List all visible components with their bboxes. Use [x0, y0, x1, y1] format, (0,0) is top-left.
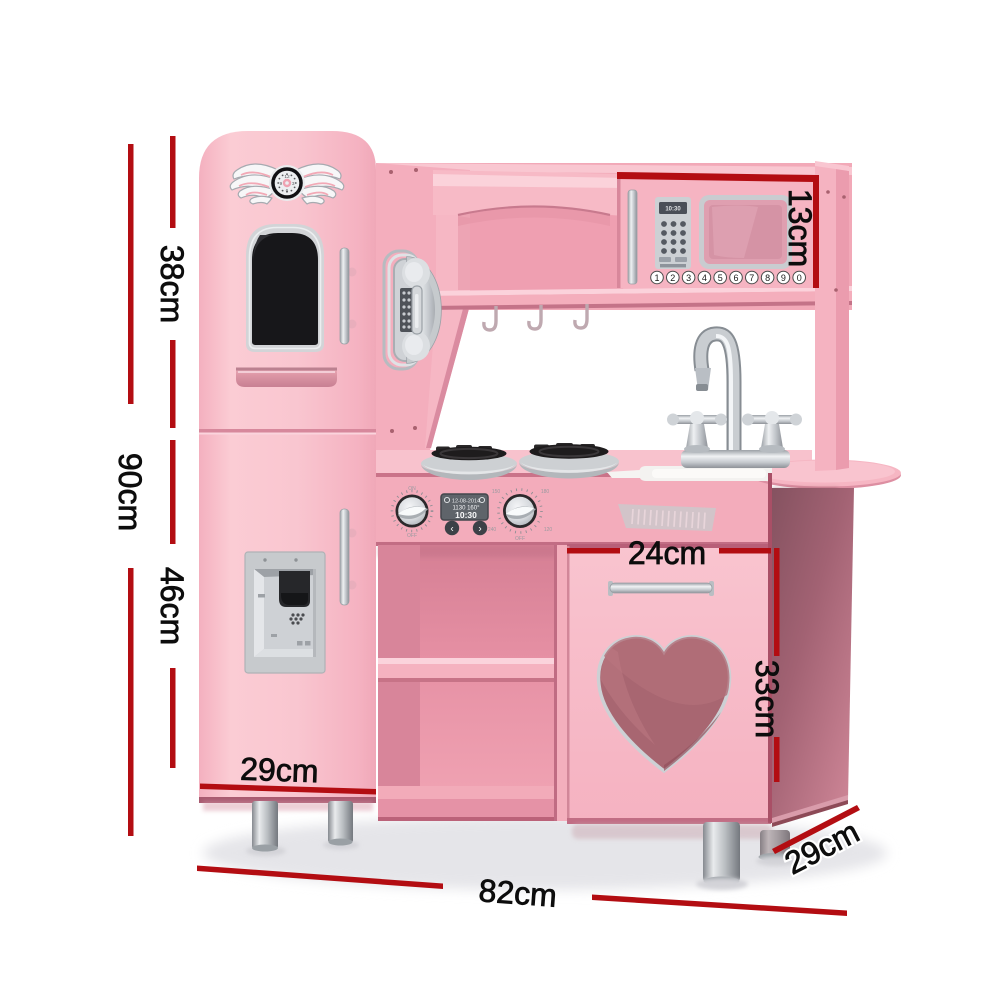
svg-text:3: 3: [686, 273, 691, 283]
svg-text:OFF: OFF: [515, 536, 525, 542]
svg-text:120: 120: [544, 527, 553, 533]
svg-text:6: 6: [733, 273, 738, 283]
svg-text:10:30: 10:30: [665, 207, 681, 213]
svg-text:13cm: 13cm: [782, 189, 818, 267]
svg-text:24cm: 24cm: [628, 535, 706, 571]
svg-text:0: 0: [797, 273, 802, 283]
svg-text:46cm: 46cm: [154, 567, 190, 645]
svg-text:2: 2: [670, 273, 675, 283]
svg-text:‹: ‹: [450, 524, 453, 535]
svg-text:8: 8: [765, 273, 770, 283]
svg-text:9: 9: [279, 181, 282, 187]
svg-text:6: 6: [286, 188, 289, 194]
svg-text:1: 1: [654, 273, 659, 283]
svg-text:ON: ON: [408, 486, 416, 492]
svg-text:90cm: 90cm: [112, 453, 148, 531]
svg-text:33cm: 33cm: [749, 660, 785, 738]
svg-text:38cm: 38cm: [154, 245, 190, 323]
svg-text:5: 5: [718, 273, 723, 283]
svg-text:OFF: OFF: [407, 533, 417, 539]
svg-text:240: 240: [488, 527, 497, 533]
svg-text:›: ›: [478, 524, 481, 535]
svg-text:10:30: 10:30: [455, 510, 477, 520]
svg-text:180: 180: [541, 489, 550, 495]
svg-text:150: 150: [492, 489, 501, 495]
svg-text:12-08-2014: 12-08-2014: [452, 499, 480, 505]
svg-text:29cm: 29cm: [240, 751, 319, 790]
svg-text:9: 9: [781, 273, 786, 283]
svg-text:7: 7: [749, 273, 754, 283]
svg-text:3: 3: [292, 181, 295, 187]
svg-text:82cm: 82cm: [477, 872, 558, 914]
svg-text:4: 4: [702, 273, 707, 283]
